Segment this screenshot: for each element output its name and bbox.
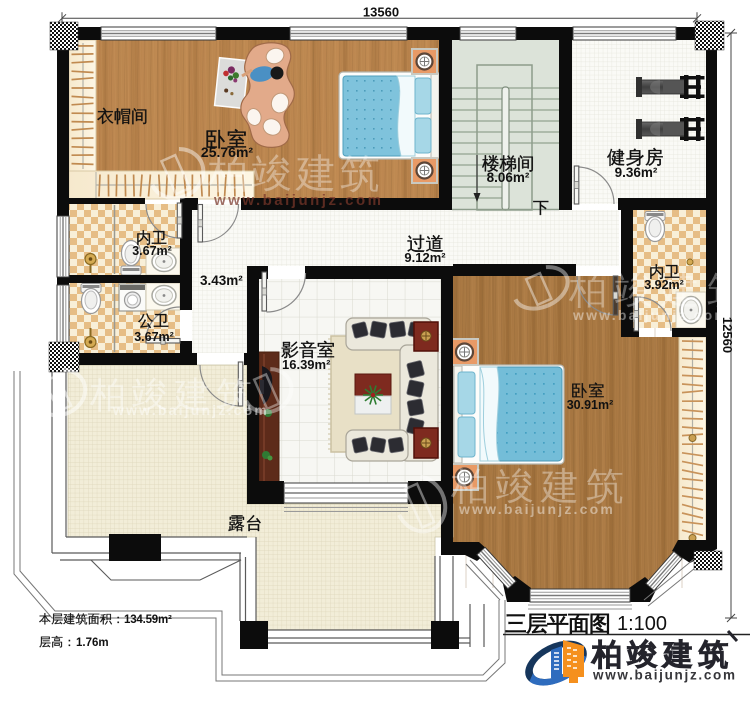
svg-text:13560: 13560 — [363, 5, 399, 20]
svg-text:www.baijunjz.com: www.baijunjz.com — [592, 668, 737, 683]
svg-text:134.59m²: 134.59m² — [124, 614, 172, 626]
svg-text:8.06m²: 8.06m² — [487, 170, 530, 185]
svg-text:9.36m²: 9.36m² — [615, 165, 658, 180]
svg-text:3.43m²: 3.43m² — [200, 273, 243, 288]
svg-text:www.baijunjz.com: www.baijunjz.com — [458, 501, 615, 517]
svg-text:12560: 12560 — [720, 317, 735, 353]
svg-text:3.67m²: 3.67m² — [132, 244, 172, 258]
svg-text:9.12m²: 9.12m² — [404, 250, 446, 265]
svg-text:25.76m²: 25.76m² — [201, 144, 253, 160]
svg-text:www.baijunjz.com: www.baijunjz.com — [572, 307, 729, 323]
svg-text:30.91m²: 30.91m² — [567, 398, 614, 412]
svg-text:16.39m²: 16.39m² — [282, 357, 331, 372]
svg-text:3.92m²: 3.92m² — [644, 278, 684, 292]
svg-text:1.76m: 1.76m — [76, 637, 109, 649]
svg-text:1:100: 1:100 — [617, 613, 667, 635]
svg-text:www.baijunjz.com: www.baijunjz.com — [112, 402, 269, 418]
svg-text:3.67m²: 3.67m² — [134, 330, 174, 344]
svg-text:www.baijunjz.com: www.baijunjz.com — [213, 192, 383, 209]
